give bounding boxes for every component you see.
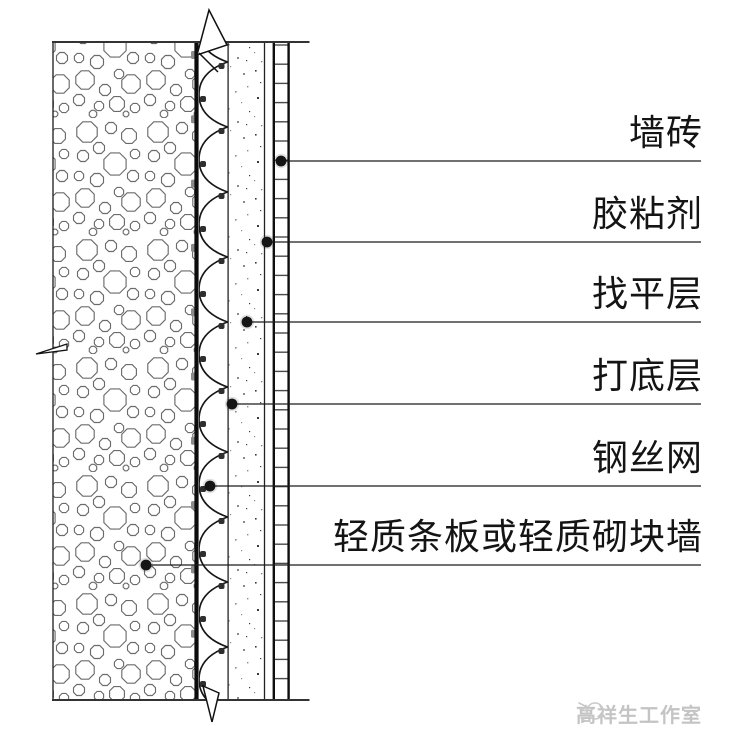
construction-detail-figure: 墙砖 胶粘剂 找平层 打底层 钢丝网 轻质条板或轻质砌块墙 高祥生工作室 — [0, 0, 742, 749]
callout-label-wall-tile: 墙砖 — [629, 115, 703, 153]
leader-dot — [141, 560, 152, 571]
leader-dot — [227, 399, 238, 410]
tile-ladder-band — [275, 45, 288, 679]
callout-label-lightweight-wall: 轻质条板或轻质砌块墙 — [333, 519, 703, 557]
callout-label-base-coat-layer: 打底层 — [592, 358, 703, 396]
callout-label-adhesive: 胶粘剂 — [592, 196, 703, 234]
callout-label-leveling-layer: 找平层 — [592, 276, 703, 314]
leader-dot — [242, 317, 253, 328]
leader-dot — [262, 237, 273, 248]
leader-dot — [205, 481, 216, 492]
lightweight-block-wall-hatch — [53, 42, 197, 700]
bird-sketch-icon — [576, 696, 610, 726]
callout-label-wire-mesh: 钢丝网 — [592, 440, 703, 478]
studio-watermark: 高祥生工作室 — [576, 696, 702, 730]
plaster-stipple-band — [228, 42, 265, 700]
leader-dot — [276, 156, 287, 167]
